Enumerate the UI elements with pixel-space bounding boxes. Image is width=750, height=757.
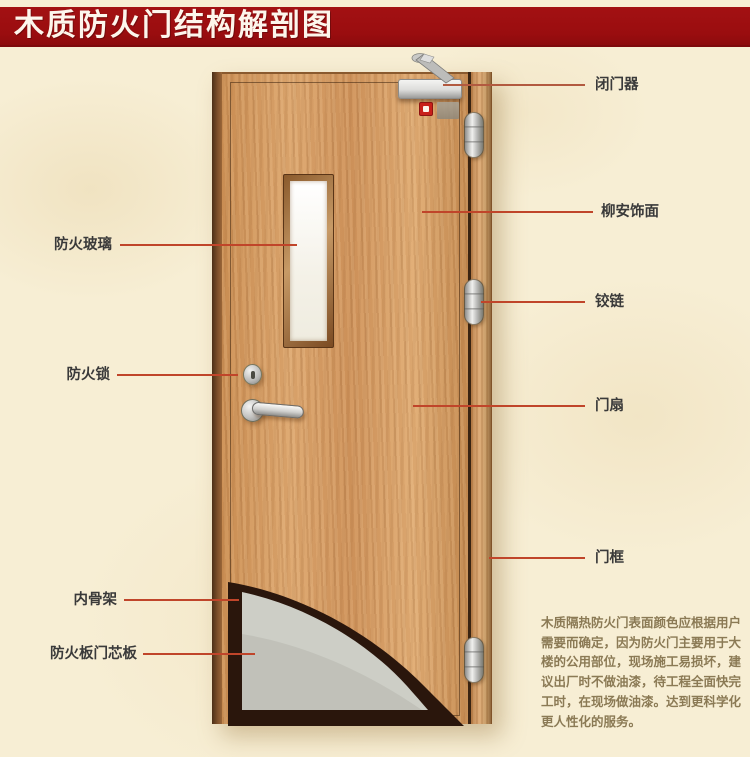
label-door-frame: 门框 [595,549,624,567]
label-hinge: 铰链 [595,293,624,311]
description-line: 更人性化的服务。 [541,713,749,733]
description-line: 议出厂时不做油漆，待工程全面快完 [541,673,749,693]
leader-line-inner-frame [124,599,239,601]
leader-line-door-leaf [413,405,585,407]
description-line: 木质隔热防火门表面颜色应根据用户 [541,614,749,634]
cutaway-section [222,74,468,726]
door-left-edge [212,72,222,724]
door-frame [471,72,492,724]
description-line: 需要而确定，因为防火门主要用于大 [541,634,749,654]
label-fire-lock: 防火锁 [67,366,111,384]
door-assembly [212,72,492,724]
label-core-board: 防火板门芯板 [50,645,137,663]
label-door-leaf: 门扇 [595,397,624,415]
door-closer-arm [408,52,464,98]
hinge-bottom-icon [464,637,484,683]
leader-line-fire-glass [120,244,297,246]
label-door-closer: 闭门器 [595,76,639,94]
hinge-top-icon [464,112,484,158]
label-fire-glass: 防火玻璃 [54,236,112,254]
description-line: 工时，在现场做油漆。达到更科学化 [541,693,749,713]
leader-line-fire-lock [117,374,238,376]
leader-line-core-board [143,653,255,655]
leader-line-lauan-veneer [422,211,593,213]
door-leaf [222,72,468,724]
infographic-page: 木质防火门结构解剖图 [0,0,750,757]
leader-line-door-closer [443,84,585,86]
title-banner: 木质防火门结构解剖图 [0,7,750,47]
description-line: 楼的公用部位，现场施工易损坏，建 [541,653,749,673]
leader-line-door-frame [489,557,585,559]
description-text: 木质隔热防火门表面颜色应根据用户 需要而确定，因为防火门主要用于大 楼的公用部位… [541,614,749,732]
label-inner-frame: 内骨架 [74,591,118,609]
page-title: 木质防火门结构解剖图 [14,9,334,43]
label-lauan-veneer: 柳安饰面 [601,203,659,221]
leader-line-hinge [481,301,585,303]
